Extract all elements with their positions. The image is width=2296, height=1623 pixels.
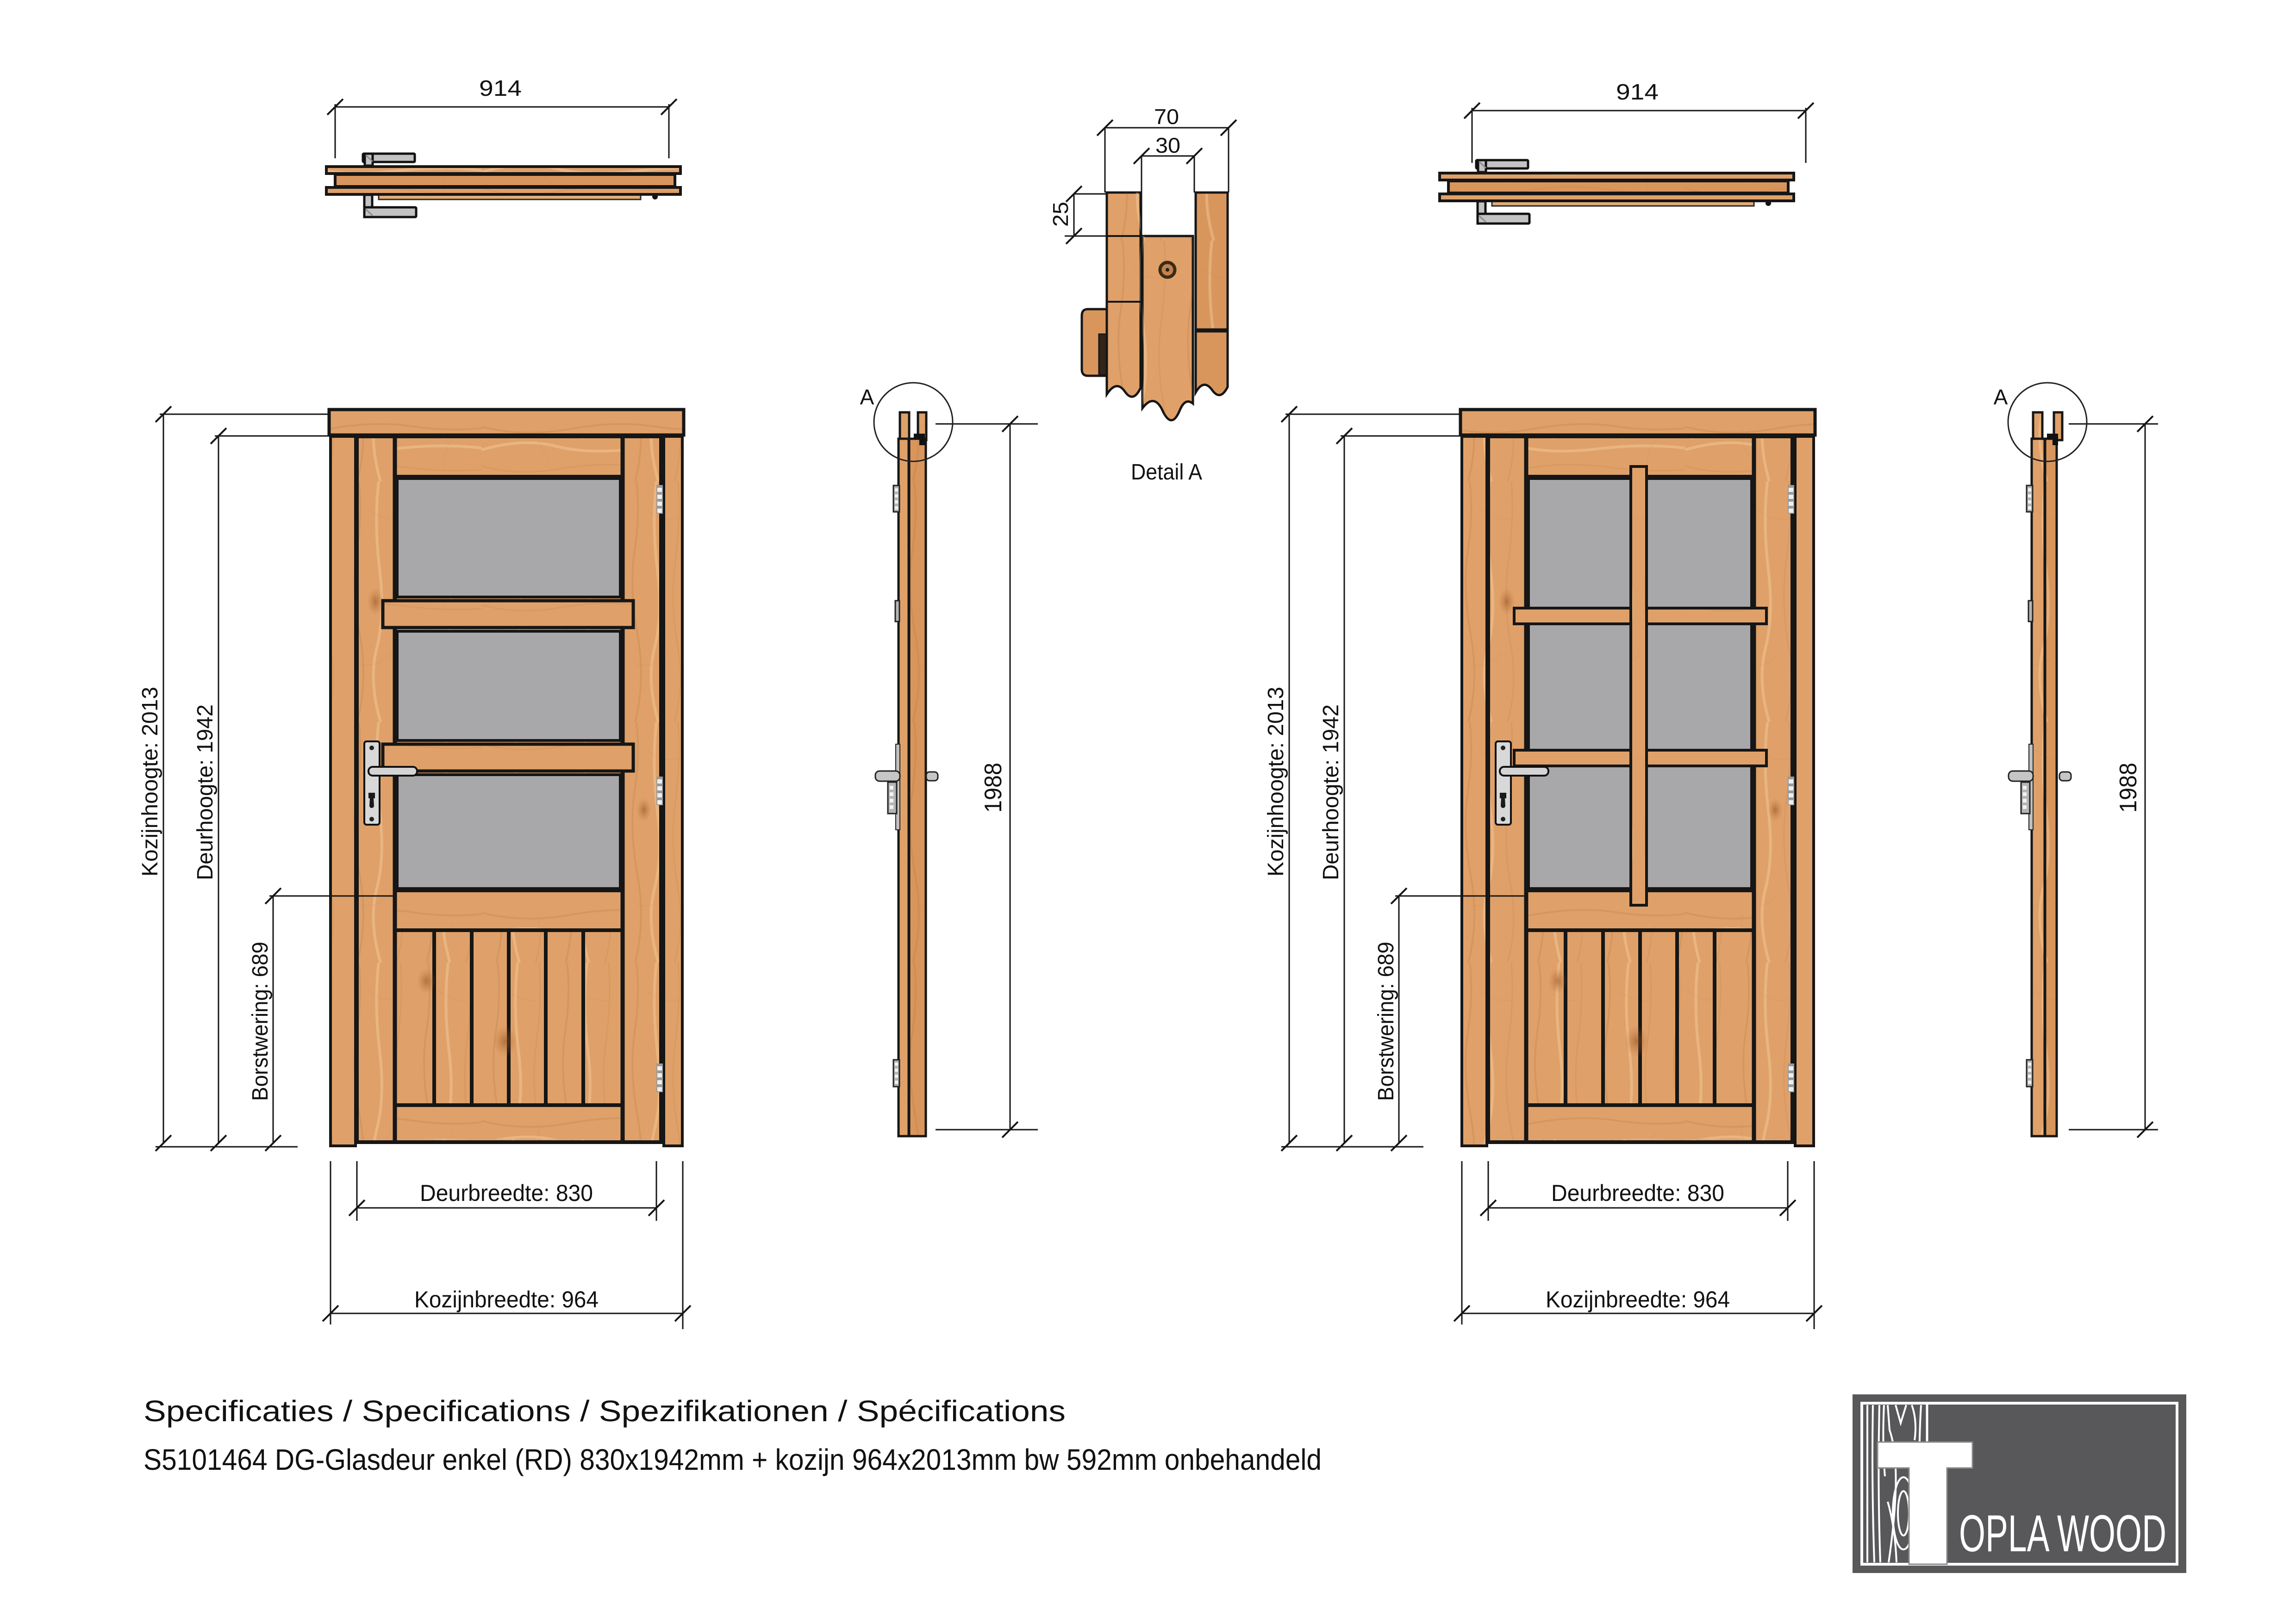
svg-text:Specificaties / Specifications: Specificaties / Specifications / Spezifi…: [143, 1394, 1066, 1428]
svg-text:A: A: [860, 385, 874, 409]
svg-text:S5101464 DG-Glasdeur enkel (RD: S5101464 DG-Glasdeur enkel (RD) 830x1942…: [143, 1443, 1322, 1476]
svg-text:OPLA WOOD: OPLA WOOD: [1959, 1505, 2166, 1562]
svg-text:Deurbreedte: 830: Deurbreedte: 830: [1551, 1180, 1724, 1206]
svg-text:914: 914: [479, 76, 522, 101]
svg-text:Kozijnhoogte: 2013: Kozijnhoogte: 2013: [1264, 687, 1288, 877]
svg-text:25: 25: [1048, 202, 1073, 227]
svg-text:Deurbreedte: 830: Deurbreedte: 830: [420, 1180, 593, 1206]
svg-text:Deurhoogte: 1942: Deurhoogte: 1942: [1319, 704, 1343, 880]
svg-text:914: 914: [1616, 80, 1659, 105]
svg-text:Deurhoogte: 1942: Deurhoogte: 1942: [193, 704, 218, 880]
svg-text:Borstwering: 689: Borstwering: 689: [248, 942, 273, 1101]
svg-text:Kozijnhoogte: 2013: Kozijnhoogte: 2013: [138, 687, 162, 877]
svg-text:Kozijnbreedte: 964: Kozijnbreedte: 964: [1546, 1287, 1730, 1312]
svg-text:Borstwering: 689: Borstwering: 689: [1374, 942, 1398, 1101]
svg-text:30: 30: [1155, 133, 1180, 157]
svg-text:Detail A: Detail A: [1131, 460, 1202, 485]
svg-text:A: A: [1994, 385, 2008, 409]
svg-text:Kozijnbreedte: 964: Kozijnbreedte: 964: [414, 1287, 599, 1312]
svg-text:70: 70: [1154, 105, 1179, 129]
svg-text:1988: 1988: [2115, 763, 2142, 813]
svg-text:1988: 1988: [980, 763, 1007, 813]
